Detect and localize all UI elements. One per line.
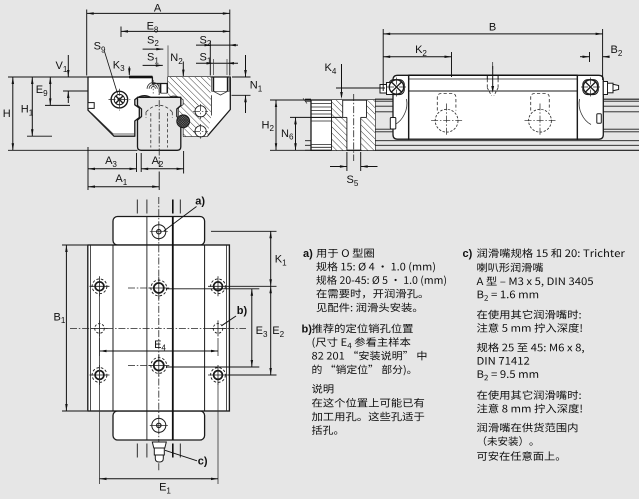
svg-text:a): a) — [303, 248, 313, 260]
svg-text:B: B — [489, 21, 496, 33]
svg-text:c): c) — [198, 456, 208, 468]
svg-text:a): a) — [195, 196, 205, 208]
svg-text:H: H — [3, 108, 11, 120]
svg-text:b): b) — [302, 323, 313, 335]
svg-text:b): b) — [237, 305, 248, 317]
svg-text:A: A — [154, 3, 162, 15]
svg-text:c): c) — [463, 248, 473, 260]
